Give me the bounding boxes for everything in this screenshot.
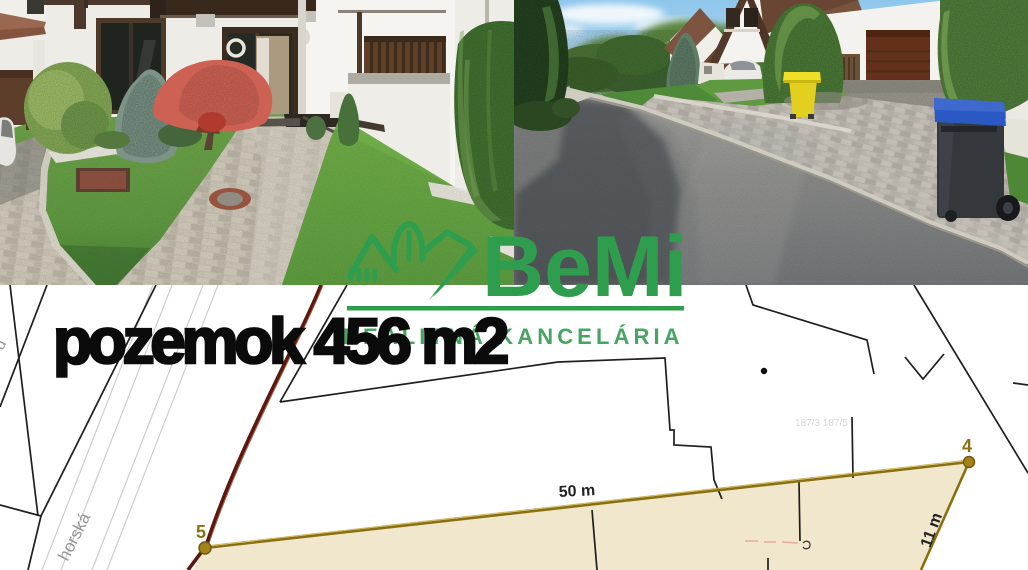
svg-text:4: 4 <box>962 436 972 456</box>
svg-text:BeMi: BeMi <box>482 219 687 315</box>
svg-text:187/3 187/5: 187/3 187/5 <box>795 418 848 429</box>
svg-text:5: 5 <box>196 522 206 542</box>
svg-text:50 m: 50 m <box>558 482 595 501</box>
